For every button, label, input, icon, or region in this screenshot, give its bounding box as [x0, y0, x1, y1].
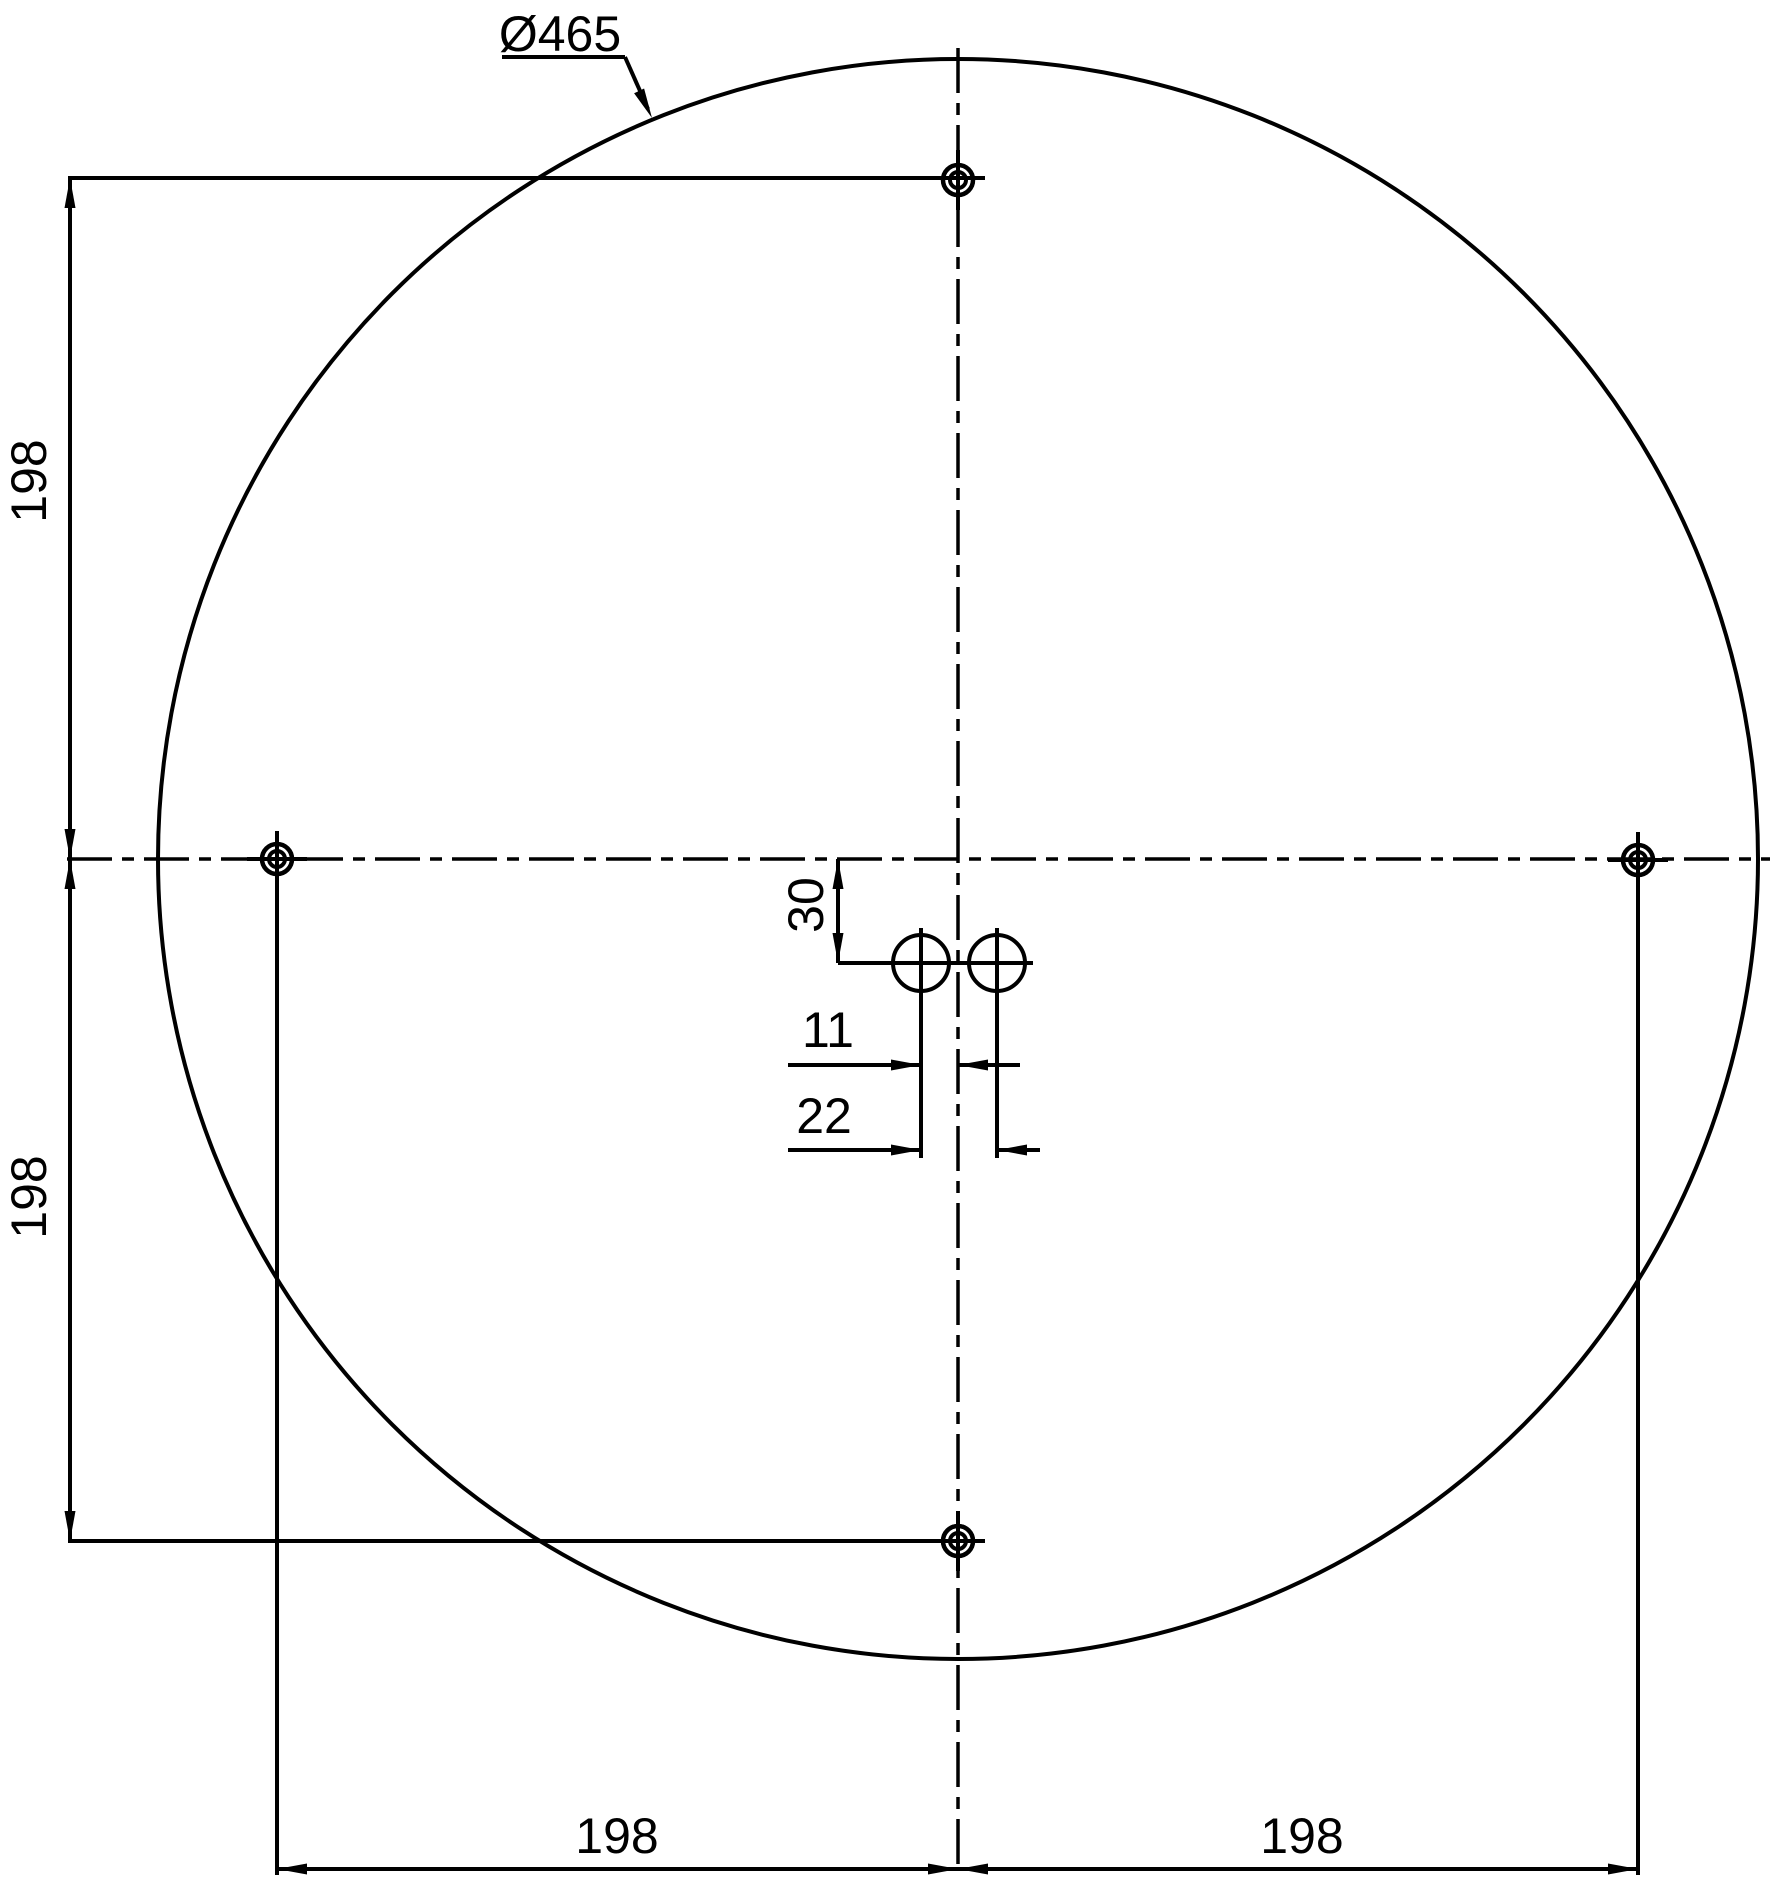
arrow-left-icon: [958, 1060, 988, 1071]
arrow-down-icon: [65, 1511, 76, 1541]
arrow-right-icon: [891, 1060, 921, 1071]
arrow-left-icon: [997, 1145, 1027, 1156]
arrow-left-icon: [958, 1864, 988, 1875]
diameter-label: Ø465: [499, 6, 621, 62]
arrow-right-icon: [1608, 1864, 1638, 1875]
arrow-right-icon: [891, 1145, 921, 1156]
dim-label-bottom-left: 198: [575, 1808, 658, 1864]
dimension-lines: [70, 178, 1638, 1869]
leader-arrowhead-icon: [634, 89, 652, 119]
centerlines: [67, 48, 1770, 1872]
arrow-up-icon: [65, 859, 76, 889]
dim-label-offset-30: 30: [778, 877, 834, 933]
dim-label-22: 22: [796, 1088, 852, 1144]
arrow-down-icon: [65, 829, 76, 859]
center-hole-pair: [838, 928, 1033, 1158]
dim-label-bottom-right: 198: [1260, 1808, 1343, 1864]
diameter-leader: [502, 57, 652, 118]
arrow-right-icon: [928, 1864, 958, 1875]
arrow-up-icon: [833, 859, 844, 889]
arrow-left-icon: [277, 1864, 307, 1875]
technical-drawing-canvas: Ø465 198 198 198 198 30 11 22: [0, 0, 1774, 1900]
dim-label-left-upper: 198: [1, 439, 57, 522]
dimension-labels: Ø465 198 198 198 198 30 11 22: [1, 6, 1344, 1864]
dim-label-11: 11: [802, 1002, 854, 1058]
arrow-down-icon: [833, 933, 844, 963]
dim-label-left-lower: 198: [1, 1155, 57, 1238]
arrow-up-icon: [65, 178, 76, 208]
